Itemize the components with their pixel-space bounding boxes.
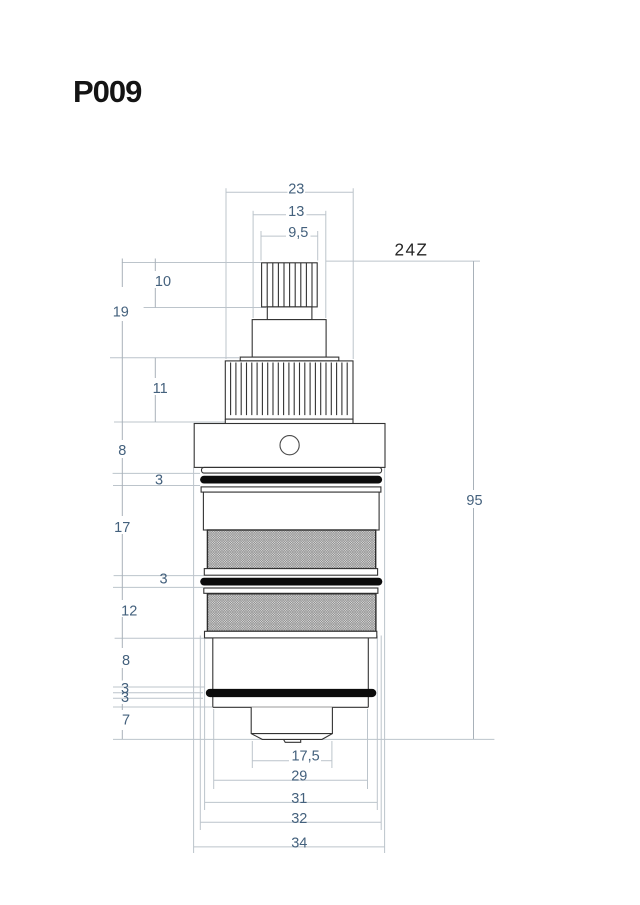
svg-text:9,5: 9,5 (288, 225, 308, 241)
svg-text:17,5: 17,5 (291, 748, 319, 764)
svg-text:3: 3 (155, 473, 163, 489)
svg-text:7: 7 (122, 713, 130, 729)
svg-text:95: 95 (466, 493, 482, 509)
svg-text:24Z: 24Z (395, 240, 429, 260)
svg-text:34: 34 (291, 836, 307, 852)
svg-text:8: 8 (118, 443, 126, 459)
svg-text:17: 17 (114, 520, 130, 536)
svg-text:23: 23 (288, 181, 304, 197)
svg-text:8: 8 (122, 653, 130, 669)
svg-text:3: 3 (121, 690, 129, 706)
svg-text:10: 10 (155, 274, 171, 290)
svg-text:31: 31 (291, 791, 307, 807)
svg-text:13: 13 (288, 204, 304, 220)
svg-text:19: 19 (113, 304, 129, 320)
svg-text:12: 12 (121, 603, 137, 619)
svg-text:P009: P009 (73, 74, 142, 109)
svg-text:11: 11 (153, 381, 168, 397)
svg-text:32: 32 (291, 811, 307, 827)
svg-text:29: 29 (291, 769, 307, 785)
svg-text:3: 3 (159, 572, 167, 588)
